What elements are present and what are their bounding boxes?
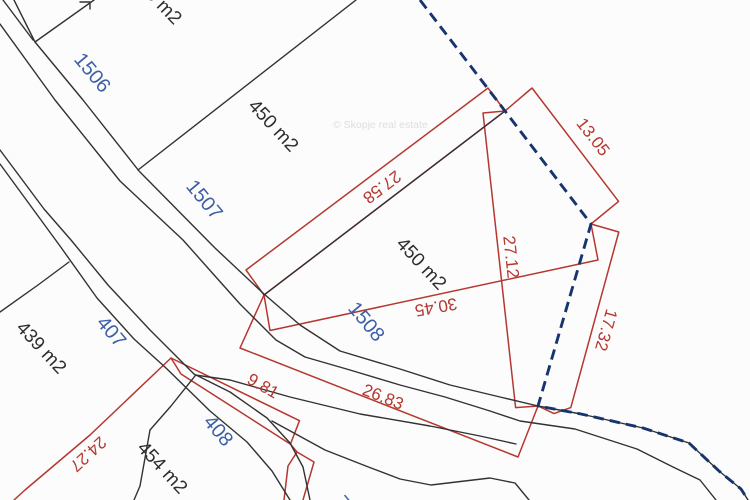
svg-text:© Skopje real estate: © Skopje real estate [333,119,428,131]
